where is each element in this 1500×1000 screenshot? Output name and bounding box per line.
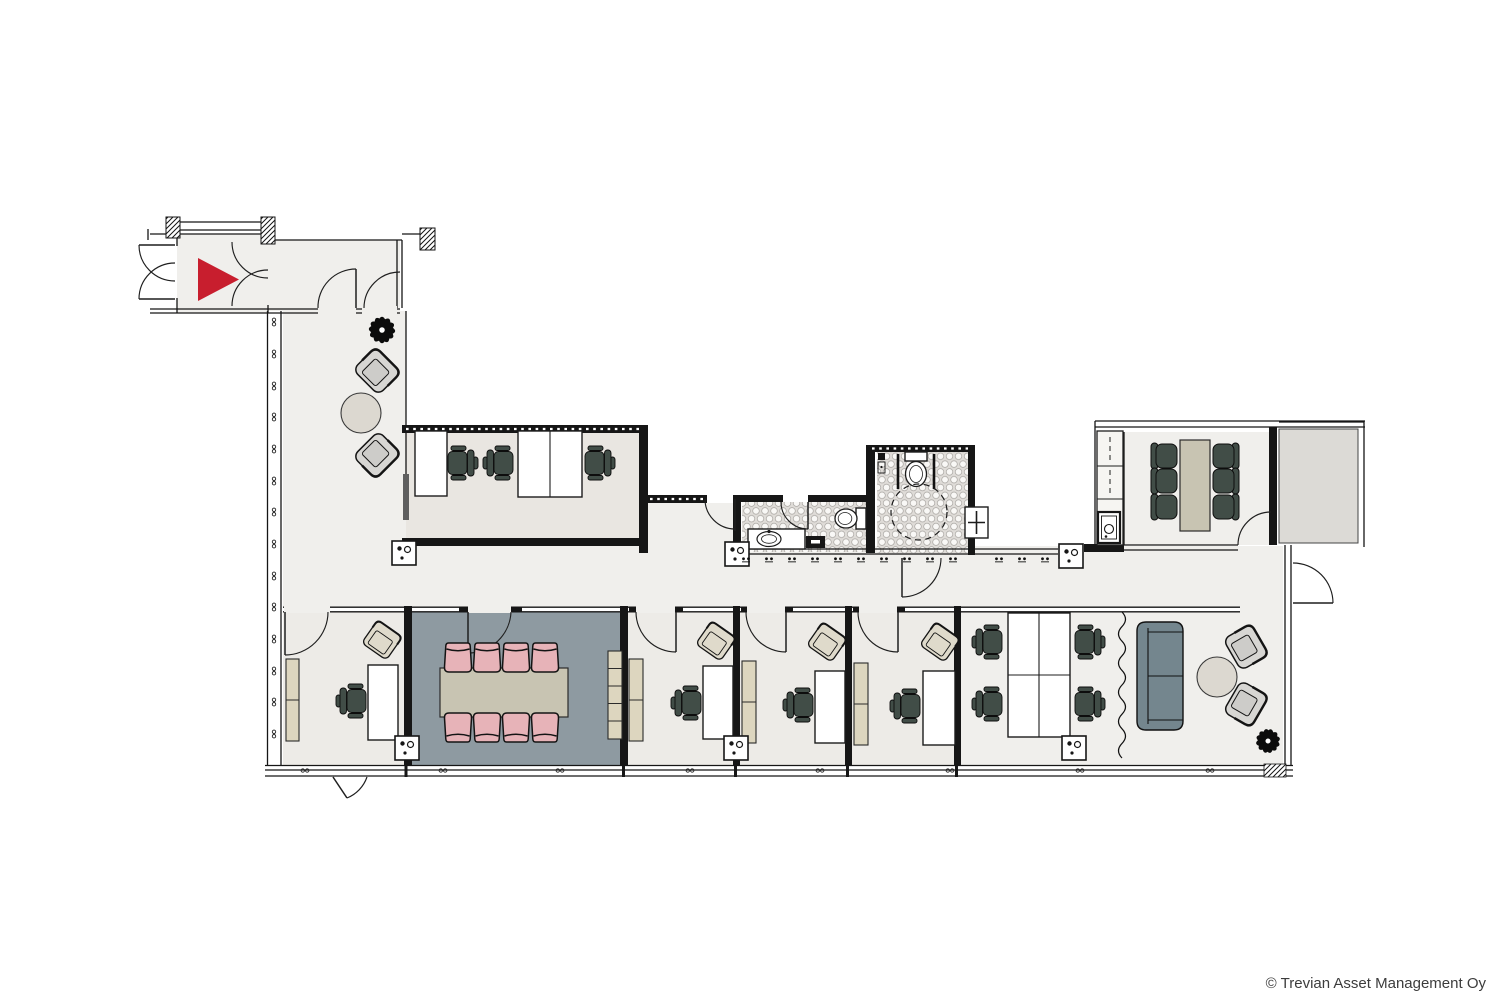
outlet-symbol <box>392 541 416 565</box>
office-chair <box>972 625 1002 659</box>
desk <box>703 666 733 739</box>
copyright-text: © Trevian Asset Management Oy <box>1266 975 1486 992</box>
conference-chair <box>473 713 500 742</box>
conference-chair <box>531 713 558 742</box>
desk <box>368 665 398 740</box>
accessible-sink <box>965 507 988 538</box>
meeting-chair <box>1151 468 1177 494</box>
conference-chair <box>502 643 529 672</box>
office-chair <box>1075 625 1105 659</box>
outlet-symbol <box>725 542 749 566</box>
conference-chair <box>502 713 529 742</box>
right-facade-door <box>1293 563 1333 603</box>
corridor-floor <box>283 546 1283 607</box>
office-chair <box>972 687 1002 721</box>
conference-chair <box>531 643 558 672</box>
office-chair <box>448 446 478 480</box>
meeting-table <box>1180 440 1210 531</box>
office-chair <box>890 689 920 723</box>
meeting-chair <box>1151 443 1177 469</box>
outlet-symbol <box>724 736 748 760</box>
outlet-symbol <box>1059 544 1083 568</box>
office-chair <box>783 688 813 722</box>
cabinet <box>608 651 622 739</box>
office-chair <box>585 446 615 480</box>
corridor-notch-floor <box>648 503 737 548</box>
outlet-symbol <box>395 736 419 760</box>
conference-chair <box>444 643 471 672</box>
wall-screen <box>403 474 409 520</box>
meeting-chair <box>1213 443 1239 469</box>
bottom-facade-exit-door <box>333 777 367 798</box>
office-chair <box>671 686 701 720</box>
conference-chair <box>473 643 500 672</box>
floor-plan: © Trevian Asset Management Oy <box>0 0 1500 1000</box>
desk <box>815 671 845 743</box>
meeting-chair <box>1213 494 1239 520</box>
office-chair <box>1075 687 1105 721</box>
round-table <box>1197 657 1237 697</box>
meeting-chair <box>1151 494 1177 520</box>
conference-table <box>440 668 568 717</box>
terrace-floor <box>1279 429 1358 543</box>
office-chair <box>483 446 513 480</box>
desk <box>415 431 447 496</box>
meeting-chair <box>1213 468 1239 494</box>
toilet <box>835 508 866 529</box>
wardrobe-cabinet <box>1097 431 1123 545</box>
outlet-symbol <box>1062 736 1086 760</box>
sink-basin <box>757 532 781 547</box>
floor-plan-drawing <box>0 0 1500 1000</box>
conference-chair <box>444 713 471 742</box>
sofa <box>1137 622 1183 730</box>
round-table <box>341 393 381 433</box>
office-chair <box>336 684 366 718</box>
desk <box>923 671 955 745</box>
